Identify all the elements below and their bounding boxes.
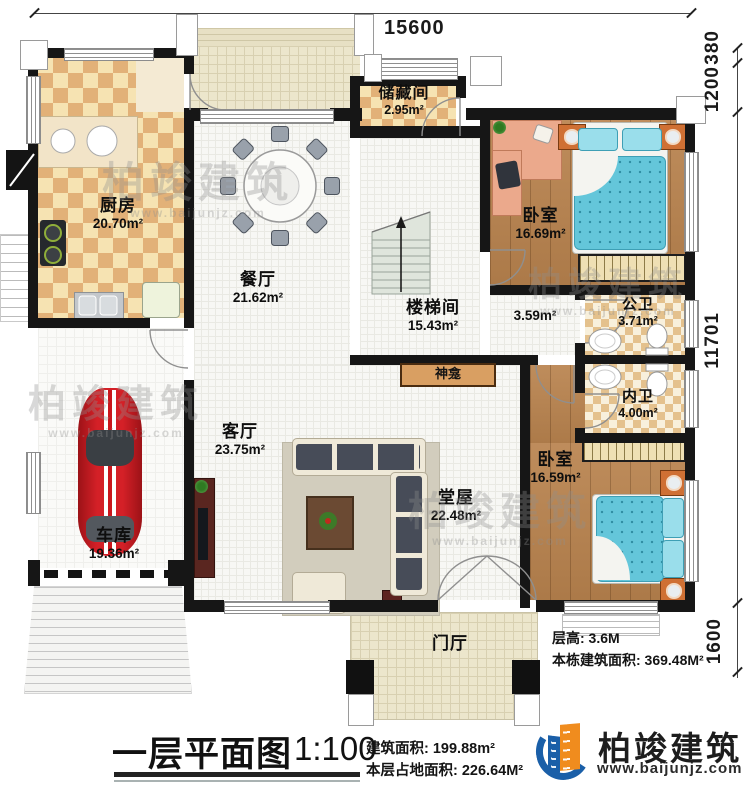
bath-fixtures — [589, 324, 668, 396]
dimension-line-right — [737, 48, 738, 678]
room-label-storage: 储藏间 2.95m² — [352, 84, 456, 118]
floorplan-page: 神龛 — [0, 0, 750, 792]
room-label-bedroom-top: 卧室 16.69m² — [488, 206, 593, 243]
dimension-right-1600: 1600 — [704, 618, 726, 664]
dimension-right-11701: 11701 — [702, 312, 724, 369]
note-floor-height: 层高: 3.6M — [552, 628, 620, 648]
dimension-top-label: 15600 — [384, 17, 445, 40]
brand-logo-building-blue — [548, 735, 560, 772]
plant — [319, 512, 337, 530]
porch-column — [364, 54, 382, 82]
room-label-garage: 车库 19.36m² — [64, 526, 164, 563]
room-label-corridor: 3.59m² — [495, 308, 575, 324]
pilaster — [20, 40, 48, 70]
porch-column — [470, 56, 502, 86]
foyer-column — [346, 660, 374, 694]
note-total-area: 本栋建筑面积: 369.48M² — [552, 650, 704, 670]
window — [684, 300, 699, 348]
terrace-column — [176, 14, 198, 56]
page-title: 一层平面图 — [112, 726, 292, 777]
room-label-hall: 堂屋 22.48m² — [406, 488, 506, 525]
window — [26, 452, 41, 514]
title-floor-area: 建筑面积: 199.88m² — [366, 737, 495, 758]
room-label-bath-public: 公卫 3.71m² — [600, 296, 676, 329]
window — [64, 48, 154, 61]
window — [684, 370, 699, 428]
room-label-bath-ensuite: 内卫 4.00m² — [600, 388, 676, 421]
window — [684, 480, 699, 582]
stairs — [372, 212, 430, 294]
brand-logo-building-orange — [560, 723, 580, 771]
foyer-column-base — [348, 694, 374, 726]
room-label-foyer: 门厅 — [408, 634, 492, 654]
room-label-living: 客厅 23.75m² — [190, 422, 290, 459]
door-swings — [150, 74, 628, 600]
flue-mark — [10, 154, 34, 186]
dining-table — [221, 127, 340, 246]
terrace-column — [354, 14, 374, 56]
window — [200, 109, 334, 124]
brand-name: 柏竣建筑 — [598, 722, 742, 770]
dimension-line-top — [34, 13, 692, 14]
dimension-right-380: 380 — [702, 30, 724, 65]
room-label-dining: 餐厅 21.62m² — [208, 270, 308, 307]
window — [26, 76, 41, 144]
window — [224, 601, 330, 614]
dimension-right-1200: 1200 — [702, 66, 724, 112]
title-underline — [114, 772, 360, 777]
room-label-stairwell: 楼梯间 15.43m² — [378, 298, 488, 335]
window — [684, 152, 699, 252]
title-footprint-area: 本层占地面积: 226.64M² — [366, 759, 523, 780]
foyer-column-base — [514, 694, 540, 726]
window — [564, 601, 658, 614]
title-underline-light — [114, 780, 360, 782]
room-label-bedroom-bottom: 卧室 16.59m² — [503, 450, 608, 487]
page-scale: 1:100 — [294, 730, 377, 768]
room-label-kitchen: 厨房 20.70m² — [68, 196, 168, 233]
foyer-column — [512, 660, 540, 694]
